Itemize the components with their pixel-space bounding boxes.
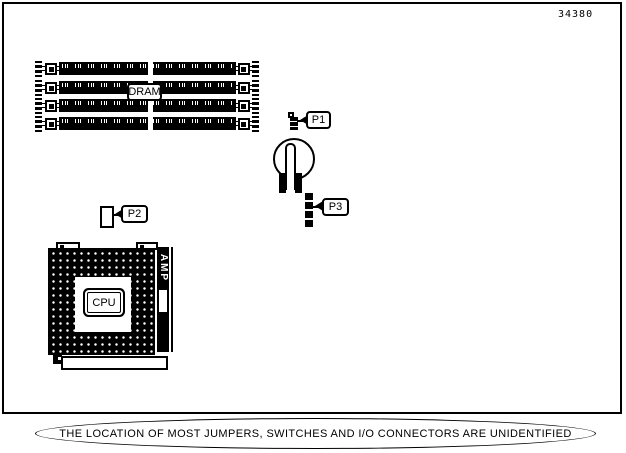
simm-clip-left — [45, 63, 57, 75]
simm-clip-right — [238, 118, 250, 130]
cpu-label: CPU — [87, 292, 121, 313]
figure-number: 34380 — [558, 9, 604, 20]
simm-bracket-right — [252, 98, 259, 114]
simm-clip-left — [45, 82, 57, 94]
simm-body — [59, 62, 236, 75]
p1-label: P1 — [306, 111, 331, 129]
caption-ellipse: THE LOCATION OF MOST JUMPERS, SWITCHES A… — [35, 418, 596, 449]
socket-lever-slot — [159, 290, 167, 312]
simm-bracket-right — [252, 116, 259, 132]
jumper-p3-icon — [305, 193, 313, 227]
dram-module — [35, 61, 259, 77]
p3-label: P3 — [322, 198, 349, 216]
socket-retention-bar — [61, 356, 168, 370]
socket-brand-label: AMP — [157, 247, 169, 289]
socket-lever-edge — [171, 247, 173, 352]
simm-bracket-right — [252, 61, 259, 77]
simm-bracket-left — [35, 61, 42, 77]
dram-module — [35, 116, 259, 132]
p2-label: P2 — [121, 205, 148, 223]
simm-clip-left — [45, 100, 57, 112]
speaker-leg-right — [295, 173, 302, 193]
simm-clip-right — [238, 82, 250, 94]
simm-clip-right — [238, 63, 250, 75]
simm-notch — [148, 117, 153, 130]
speaker-leg-left — [279, 173, 286, 193]
jumper-p1-icon — [290, 117, 298, 130]
simm-clip-left — [45, 118, 57, 130]
simm-notch — [148, 62, 153, 75]
board-diagram: 34380 — [0, 0, 626, 453]
simm-bracket-left — [35, 80, 42, 96]
simm-clip-right — [238, 100, 250, 112]
simm-bracket-left — [35, 98, 42, 114]
simm-bracket-right — [252, 80, 259, 96]
simm-bracket-left — [35, 116, 42, 132]
simm-body — [59, 117, 236, 130]
jumper-p2-icon — [100, 206, 114, 228]
dram-label: DRAM — [127, 83, 162, 101]
